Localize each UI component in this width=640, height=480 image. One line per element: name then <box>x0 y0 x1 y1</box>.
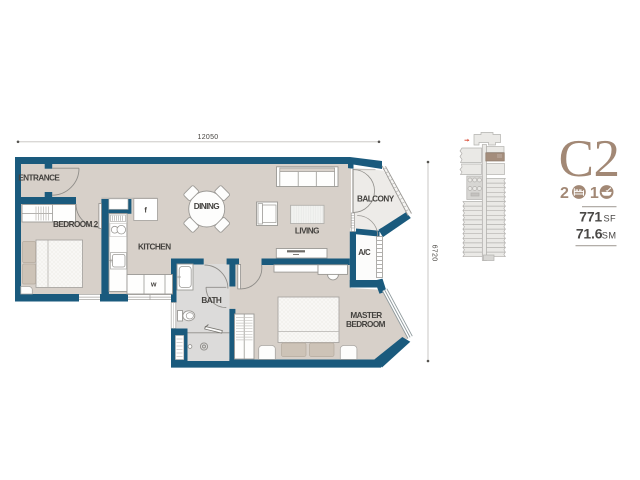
svg-text:KITCHEN: KITCHEN <box>138 242 171 251</box>
svg-text:BEDROOM 2: BEDROOM 2 <box>53 220 99 229</box>
svg-text:ENTRANCE: ENTRANCE <box>18 173 60 182</box>
svg-text:BALCONY: BALCONY <box>357 195 395 204</box>
svg-text:12050: 12050 <box>198 134 219 141</box>
svg-text:BEDROOM: BEDROOM <box>346 320 386 329</box>
svg-text:SM: SM <box>602 230 617 240</box>
svg-text:6720: 6720 <box>430 245 437 262</box>
svg-text:71.6: 71.6 <box>576 225 603 241</box>
svg-text:LIVING: LIVING <box>295 227 319 236</box>
svg-text:BATH: BATH <box>201 296 222 305</box>
svg-text:w: w <box>150 280 157 289</box>
svg-text:1: 1 <box>590 185 599 202</box>
svg-text:DINING: DINING <box>194 202 220 211</box>
svg-text:SF: SF <box>603 214 616 224</box>
svg-text:A/C: A/C <box>358 248 371 257</box>
svg-text:C2: C2 <box>559 130 620 188</box>
svg-text:2: 2 <box>560 185 569 202</box>
svg-text:771: 771 <box>579 209 602 225</box>
